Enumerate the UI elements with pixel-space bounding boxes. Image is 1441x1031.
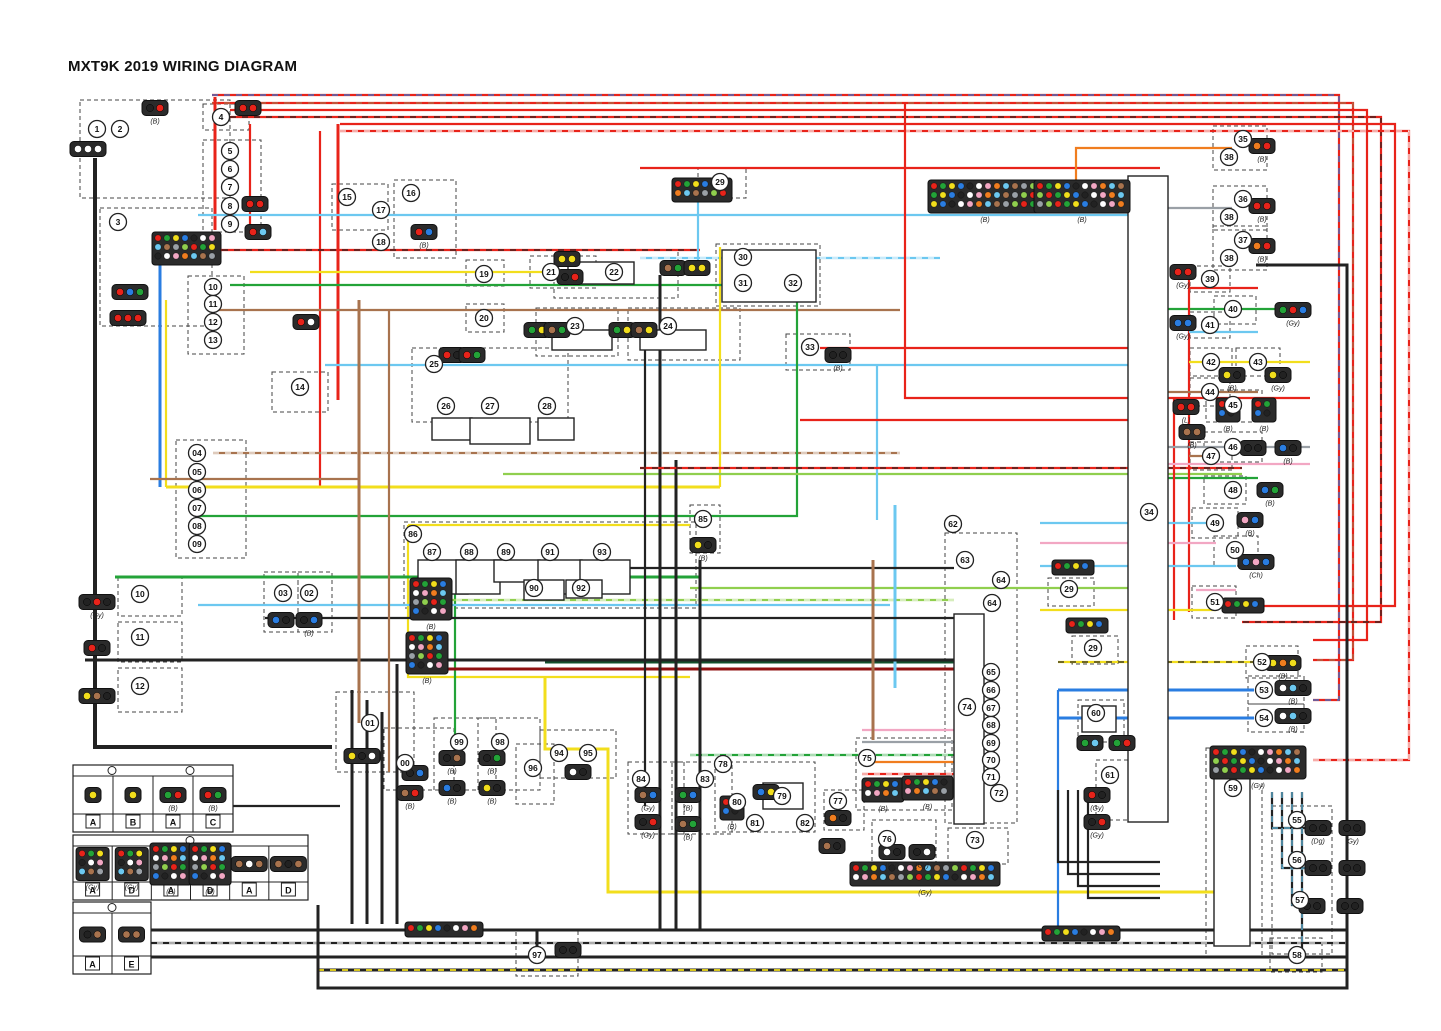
component-number-marker: 88 (461, 544, 478, 561)
multipin-connector (1042, 926, 1120, 941)
component-number: 99 (454, 737, 464, 747)
component-number: 19 (479, 269, 489, 279)
component-number-marker: 31 (735, 275, 752, 292)
component-number-marker: 00 (397, 755, 414, 772)
connector-color-label: (B) (1288, 699, 1297, 706)
component-number-marker: 65 (983, 664, 1000, 681)
connector-color-label: (Gy) (1251, 783, 1265, 790)
component-number: 18 (376, 237, 386, 247)
component-number-marker: 44 (1202, 384, 1219, 401)
connector-icon: (B) (296, 613, 322, 638)
connector-color-label: (L) (1182, 418, 1191, 425)
connector-icon (125, 788, 141, 803)
connector-icon (235, 101, 261, 116)
connector-icon: (Gy) (79, 595, 115, 620)
component-number-marker: 14 (292, 379, 309, 396)
component-number-marker: 17 (373, 202, 390, 219)
component-number-marker: 2 (112, 121, 129, 138)
connector-icon (1109, 736, 1135, 751)
component-number: 48 (1228, 485, 1238, 495)
component-number: 38 (1224, 212, 1234, 222)
connector-icon: (B) (1249, 139, 1275, 164)
connector-color-label: (Gy) (1090, 806, 1104, 813)
component-number: 72 (994, 788, 1004, 798)
component-number: 54 (1259, 713, 1269, 723)
component-number-marker: 72 (991, 785, 1008, 802)
component-number: 92 (576, 583, 586, 593)
component-number-marker: 77 (830, 793, 847, 810)
connector-color-label: (Gy) (1345, 839, 1359, 846)
component-number-marker: 84 (633, 771, 650, 788)
component-number: 36 (1238, 194, 1248, 204)
component-number: 28 (542, 401, 552, 411)
component-number-marker: 38 (1221, 250, 1238, 267)
component-number-marker: 54 (1256, 710, 1273, 727)
connector-icon (459, 348, 485, 363)
connector-icon (1337, 899, 1363, 914)
component-number: 77 (833, 796, 843, 806)
component-number-marker: 12 (205, 314, 222, 331)
connector-color-label: (B) (833, 366, 842, 373)
component-number: 82 (800, 818, 810, 828)
component-number: 80 (732, 797, 742, 807)
component-body-box (1128, 176, 1168, 822)
connector-icon: (B) (1275, 709, 1311, 734)
connector-icon (819, 839, 845, 854)
component-number: 09 (192, 539, 202, 549)
component-number-marker: 62 (945, 516, 962, 533)
component-number: 75 (862, 753, 872, 763)
component-number-marker: 8 (222, 198, 239, 215)
component-number: 57 (1295, 895, 1305, 905)
component-number-marker: 59 (1225, 780, 1242, 797)
connector-color-label: (B) (208, 806, 217, 813)
connector-color-label: (Gy) (915, 863, 929, 870)
component-number: 38 (1224, 152, 1234, 162)
connector-icon (245, 225, 271, 240)
connector-icon: (B) (690, 538, 716, 563)
component-number-marker: 99 (451, 734, 468, 751)
component-number: 33 (805, 342, 815, 352)
connector-color-label: (Gy) (90, 613, 104, 620)
component-number: 26 (441, 401, 451, 411)
connector-icon: (Dg) (1305, 821, 1331, 846)
component-number: 89 (501, 547, 511, 557)
connector-icon (631, 323, 657, 338)
component-number: 00 (400, 758, 410, 768)
connector-color-label: (B) (150, 119, 159, 126)
multipin-connector: (B) (1252, 398, 1276, 433)
component-number: 43 (1253, 357, 1263, 367)
connector-color-label: (B) (405, 804, 414, 811)
component-number: 64 (996, 575, 1006, 585)
connector-icon: (B) (142, 101, 168, 126)
connector-color-label: (B) (304, 631, 313, 638)
component-number-marker: 02 (301, 585, 318, 602)
connector-icon (80, 927, 106, 942)
component-number-marker: 34 (1141, 504, 1158, 521)
component-number: 84 (636, 774, 646, 784)
connector-color-label: (Gy) (1090, 833, 1104, 840)
component-number: 67 (986, 703, 996, 713)
component-number-marker: 05 (189, 464, 206, 481)
component-number-marker: 12 (132, 678, 149, 695)
component-body-box (494, 560, 540, 582)
component-number-marker: 29 (1061, 581, 1078, 598)
component-number-marker: 71 (983, 769, 1000, 786)
component-number: 39 (1205, 274, 1215, 284)
component-number: 6 (228, 164, 233, 174)
connector-color-label: (B) (419, 243, 428, 250)
component-number: 23 (570, 321, 580, 331)
wire (230, 110, 1367, 640)
component-number: 34 (1144, 507, 1154, 517)
component-number: 37 (1238, 235, 1248, 245)
connector-color-label: (Gy) (125, 885, 139, 892)
component-number: 30 (738, 252, 748, 262)
component-number-marker: 24 (660, 318, 677, 335)
component-number-marker: 66 (983, 682, 1000, 699)
connector-icon: (B) (1249, 239, 1275, 264)
component-number-marker: 36 (1235, 191, 1252, 208)
legend-letter: E (128, 960, 134, 970)
connector-icon: (B) (439, 781, 465, 806)
connector-icon: (B) (825, 348, 851, 373)
component-number: 66 (986, 685, 996, 695)
component-number: 11 (209, 299, 218, 309)
component-number: 64 (987, 598, 997, 608)
component-number: 46 (1228, 442, 1238, 452)
connector-color-label: (B) (422, 678, 431, 685)
connector-icon (84, 641, 110, 656)
component-number-marker: 15 (339, 189, 356, 206)
component-number-marker: 58 (1289, 947, 1306, 964)
legend-table: A(Gy)D(Gy)A(B)D(B)AD (73, 835, 308, 900)
legend-letter: A (90, 818, 97, 828)
connector-color-label: (Gy) (1286, 321, 1300, 328)
component-number: 85 (698, 514, 708, 524)
component-number: 15 (342, 192, 352, 202)
component-number: 45 (1228, 400, 1238, 410)
component-number-marker: 10 (132, 586, 149, 603)
component-number-marker: 09 (189, 536, 206, 553)
component-number-marker: 3 (110, 214, 127, 231)
component-number: 81 (750, 818, 760, 828)
connector-icon: (Ch) (1238, 555, 1274, 580)
component-number: 53 (1259, 685, 1269, 695)
connector-icon: (Gy) (635, 788, 661, 813)
component-number-marker: 69 (983, 735, 1000, 752)
component-number-marker: 03 (275, 585, 292, 602)
connector-color-label: (B) (447, 799, 456, 806)
component-number: 29 (1064, 584, 1074, 594)
connector-color-label: (B) (1245, 531, 1254, 538)
component-number-marker: 41 (1202, 317, 1219, 334)
connector-color-label: (B) (166, 889, 175, 896)
connector-icon (660, 261, 686, 276)
connector-color-label: (B) (683, 835, 692, 842)
connector-color-label: (B) (1288, 727, 1297, 734)
component-number-marker: 4 (213, 109, 230, 126)
connector-color-label: (B) (1265, 501, 1274, 508)
component-body-box (538, 418, 574, 440)
component-number-marker: 21 (543, 264, 560, 281)
connector-icon: (L) (1173, 400, 1199, 425)
multipin-connector: (B) (928, 180, 1042, 224)
component-number-marker: 51 (1207, 594, 1224, 611)
component-number: 40 (1228, 304, 1238, 314)
component-number: 74 (962, 702, 972, 712)
component-number-marker: 47 (1203, 448, 1220, 465)
component-number: 16 (406, 188, 416, 198)
component-number-marker: 38 (1221, 149, 1238, 166)
component-number: 90 (529, 583, 539, 593)
connector-color-label: (Gy) (1176, 283, 1190, 290)
connector-icon (344, 749, 380, 764)
connector-icon: (B) (1275, 681, 1311, 706)
connector-color-label: (B) (980, 217, 989, 224)
component-number-marker: 80 (729, 794, 746, 811)
connector-icon: (B) (1237, 513, 1263, 538)
component-number: 87 (427, 547, 437, 557)
connector-icon (565, 765, 591, 780)
component-number-marker: 39 (1202, 271, 1219, 288)
component-number: 38 (1224, 253, 1234, 263)
component-number-marker: 06 (189, 482, 206, 499)
component-number-marker: 6 (222, 161, 239, 178)
component-number: 96 (528, 763, 538, 773)
component-number-marker: 40 (1225, 301, 1242, 318)
multipin-connector: (B) (410, 578, 452, 631)
component-number: 05 (192, 467, 202, 477)
connector-color-label: (Gy) (885, 863, 899, 870)
component-number: 12 (135, 681, 145, 691)
component-number-marker: 89 (498, 544, 515, 561)
component-number-marker: 5 (222, 143, 239, 160)
legend-ref-circle (186, 767, 194, 775)
multipin-connector (1066, 618, 1108, 633)
connector-icon: (B) (479, 751, 505, 776)
component-number: 20 (479, 313, 489, 323)
component-number: 29 (715, 177, 725, 187)
component-body-box (470, 418, 530, 444)
component-number: 51 (1210, 597, 1220, 607)
component-number: 11 (136, 632, 145, 642)
component-number: 91 (545, 547, 555, 557)
connector-icon: (B) (675, 817, 701, 842)
connector-icon: (B) (397, 786, 423, 811)
component-number-marker: 9 (222, 216, 239, 233)
component-number-marker: 33 (802, 339, 819, 356)
component-number-marker: 76 (879, 831, 896, 848)
connector-icon: (B) (1249, 199, 1275, 224)
component-number: 3 (116, 217, 121, 227)
component-number: 65 (986, 667, 996, 677)
component-number-marker: 04 (189, 445, 206, 462)
component-number-marker: 18 (373, 234, 390, 251)
component-number-marker: 53 (1256, 682, 1273, 699)
connector-icon (79, 689, 115, 704)
component-number: 56 (1292, 855, 1302, 865)
legend-letter: B (130, 818, 137, 828)
component-number: 47 (1206, 451, 1216, 461)
connector-icon (119, 927, 145, 942)
component-number-marker: 90 (526, 580, 543, 597)
component-number-marker: 1 (89, 121, 106, 138)
wire (318, 265, 1347, 988)
component-body-box (432, 418, 472, 440)
connector-icon: (B) (675, 788, 701, 813)
component-number-marker: 63 (957, 552, 974, 569)
connector-icon: (Gy) (1170, 265, 1196, 290)
multipin-connector: (B) (1034, 180, 1130, 224)
component-number-marker: 95 (580, 745, 597, 762)
component-number-marker: 37 (1235, 232, 1252, 249)
connector-icon (231, 857, 267, 872)
component-number-marker: 78 (715, 756, 732, 773)
component-number: 95 (583, 748, 593, 758)
connector-icon: (B) (1219, 368, 1245, 393)
component-number-marker: 42 (1203, 354, 1220, 371)
component-number-marker: 30 (735, 249, 752, 266)
component-number: 10 (135, 589, 145, 599)
connector-icon (242, 197, 268, 212)
component-number-marker: 08 (189, 518, 206, 535)
component-number-marker: 29 (712, 174, 729, 191)
diagram-graphics: (B)(B)(Gy)(Gy)(B)(B)(B)(B)(B)(B)(B)(B)(B… (0, 0, 1441, 1031)
component-number-marker: 19 (476, 266, 493, 283)
component-number-marker: 92 (573, 580, 590, 597)
connector-color-label: (Dg) (1311, 839, 1325, 846)
connector-icon: (B) (1257, 483, 1283, 508)
component-number-marker: 45 (1225, 397, 1242, 414)
component-number-marker: 26 (438, 398, 455, 415)
connector-color-label: (Gy) (1176, 334, 1190, 341)
component-number-marker: 64 (993, 572, 1010, 589)
component-number-marker: 29 (1085, 640, 1102, 657)
component-number: 32 (788, 278, 798, 288)
connector-icon: (Gy) (1339, 821, 1365, 846)
component-number: 01 (365, 718, 375, 728)
connector-color-label: (Gy) (1271, 386, 1285, 393)
component-body-box (954, 614, 984, 824)
component-number-marker: 57 (1292, 892, 1309, 909)
legend-letter: A (246, 886, 253, 896)
component-number-marker: 86 (405, 526, 422, 543)
component-number-marker: 28 (539, 398, 556, 415)
legend-ref-circle (108, 767, 116, 775)
connector-color-label: (B) (168, 806, 177, 813)
component-number-marker: 87 (424, 544, 441, 561)
connector-icon: (B) (479, 781, 505, 806)
multipin-connector (405, 922, 483, 937)
connector-icon (293, 315, 319, 330)
connector-color-label: (B) (1187, 443, 1196, 450)
component-number: 2 (118, 124, 123, 134)
component-number: 70 (986, 755, 996, 765)
component-number-marker: 46 (1225, 439, 1242, 456)
connector-color-label: (B) (878, 806, 887, 813)
component-number-marker: 64 (984, 595, 1001, 612)
component-number-marker: 52 (1254, 654, 1271, 671)
component-number: 04 (192, 448, 202, 458)
component-number-marker: 94 (551, 745, 568, 762)
component-number: 41 (1205, 320, 1215, 330)
connector-icon: (Gy) (1275, 303, 1311, 328)
connector-icon (684, 261, 710, 276)
component-number-marker: 79 (774, 788, 791, 805)
connector-icon (1077, 736, 1103, 751)
component-number: 8 (228, 201, 233, 211)
component-number: 03 (278, 588, 288, 598)
connector-color-label: (Ch) (1249, 573, 1263, 580)
connector-color-label: (B) (1278, 674, 1287, 681)
connector-color-label: (B) (1077, 217, 1086, 224)
component-dashed-box (118, 622, 182, 662)
connector-color-label: (B) (727, 824, 736, 831)
component-number: 02 (304, 588, 314, 598)
component-number: 93 (597, 547, 607, 557)
component-number-marker: 97 (529, 947, 546, 964)
connector-color-label: (Gy) (86, 885, 100, 892)
connector-color-label: (B) (1227, 386, 1236, 393)
component-number-marker: 11 (132, 629, 149, 646)
component-number: 68 (986, 720, 996, 730)
component-number: 59 (1228, 783, 1238, 793)
connector-icon (825, 811, 851, 826)
connector-icon (554, 252, 580, 267)
component-number-marker: 11 (205, 296, 222, 313)
component-dashed-box (118, 576, 182, 616)
connector-color-label: (B) (1257, 257, 1266, 264)
connector-icon (1339, 861, 1365, 876)
component-number: 17 (376, 205, 386, 215)
connector-icon: (Gy) (635, 815, 661, 840)
connector-icon: (Gy) (1265, 368, 1291, 393)
multipin-connector: (B) (862, 778, 904, 813)
component-number-marker: 98 (492, 734, 509, 751)
legend-letter: A (89, 960, 96, 970)
component-number: 50 (1230, 545, 1240, 555)
component-number-marker: 67 (983, 700, 1000, 717)
component-number: 73 (970, 835, 980, 845)
component-number: 62 (948, 519, 958, 529)
component-number: 25 (429, 359, 439, 369)
component-number: 07 (192, 503, 202, 513)
component-number: 4 (219, 112, 224, 122)
component-number-marker: 01 (362, 715, 379, 732)
component-number-marker: 16 (403, 185, 420, 202)
component-number: 14 (295, 382, 305, 392)
connector-color-label: (B) (426, 624, 435, 631)
connector-icon: (B) (1275, 441, 1301, 466)
component-number-marker: 27 (482, 398, 499, 415)
component-number: 1 (95, 124, 100, 134)
component-number: 24 (663, 321, 673, 331)
component-number: 5 (228, 146, 233, 156)
component-number-marker: 07 (189, 500, 206, 517)
component-number-marker: 38 (1221, 209, 1238, 226)
component-number: 12 (208, 317, 218, 327)
component-number: 86 (408, 529, 418, 539)
connector-color-label: (B) (1257, 217, 1266, 224)
connector-color-label: (B) (205, 889, 214, 896)
connector-color-label: (B) (1257, 157, 1266, 164)
multipin-connector (152, 232, 221, 265)
connector-color-label: (B) (487, 769, 496, 776)
component-number: 71 (986, 772, 996, 782)
component-number: 94 (554, 748, 564, 758)
